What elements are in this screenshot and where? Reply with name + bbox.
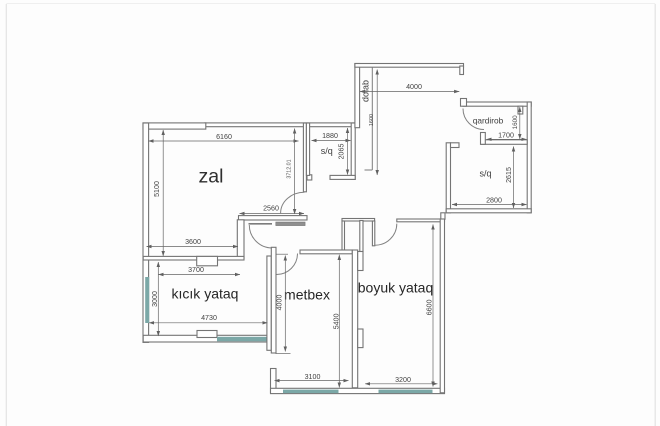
svg-text:qardirob: qardirob — [473, 116, 504, 126]
svg-text:metbex: metbex — [284, 287, 330, 303]
svg-text:3700: 3700 — [188, 266, 204, 274]
svg-text:1600: 1600 — [369, 114, 375, 126]
svg-text:3100: 3100 — [305, 373, 321, 381]
svg-text:1880: 1880 — [322, 132, 338, 140]
svg-text:3600: 3600 — [185, 238, 201, 246]
svg-text:dolab: dolab — [360, 80, 370, 102]
svg-text:boyuk yataq: boyuk yataq — [358, 280, 434, 296]
svg-text:3000: 3000 — [151, 291, 159, 307]
svg-text:4000: 4000 — [406, 83, 422, 91]
svg-text:s/q: s/q — [479, 169, 491, 179]
svg-text:5100: 5100 — [153, 181, 161, 197]
svg-text:6160: 6160 — [216, 133, 232, 141]
svg-text:3712.01: 3712.01 — [286, 159, 292, 178]
svg-text:2615: 2615 — [505, 167, 513, 183]
svg-text:5400: 5400 — [333, 313, 341, 329]
svg-text:2560: 2560 — [263, 205, 279, 213]
svg-text:4000: 4000 — [276, 295, 284, 311]
svg-text:zal: zal — [199, 166, 224, 188]
svg-text:kıcık yataq: kıcık yataq — [172, 286, 239, 302]
svg-text:3200: 3200 — [395, 376, 411, 384]
svg-text:2800: 2800 — [486, 197, 502, 205]
svg-text:4730: 4730 — [201, 314, 217, 322]
svg-text:1700: 1700 — [498, 132, 514, 140]
svg-text:1600: 1600 — [512, 115, 519, 130]
svg-text:6600: 6600 — [426, 299, 434, 315]
svg-text:s/q: s/q — [321, 146, 333, 156]
svg-text:2065: 2065 — [338, 144, 346, 160]
